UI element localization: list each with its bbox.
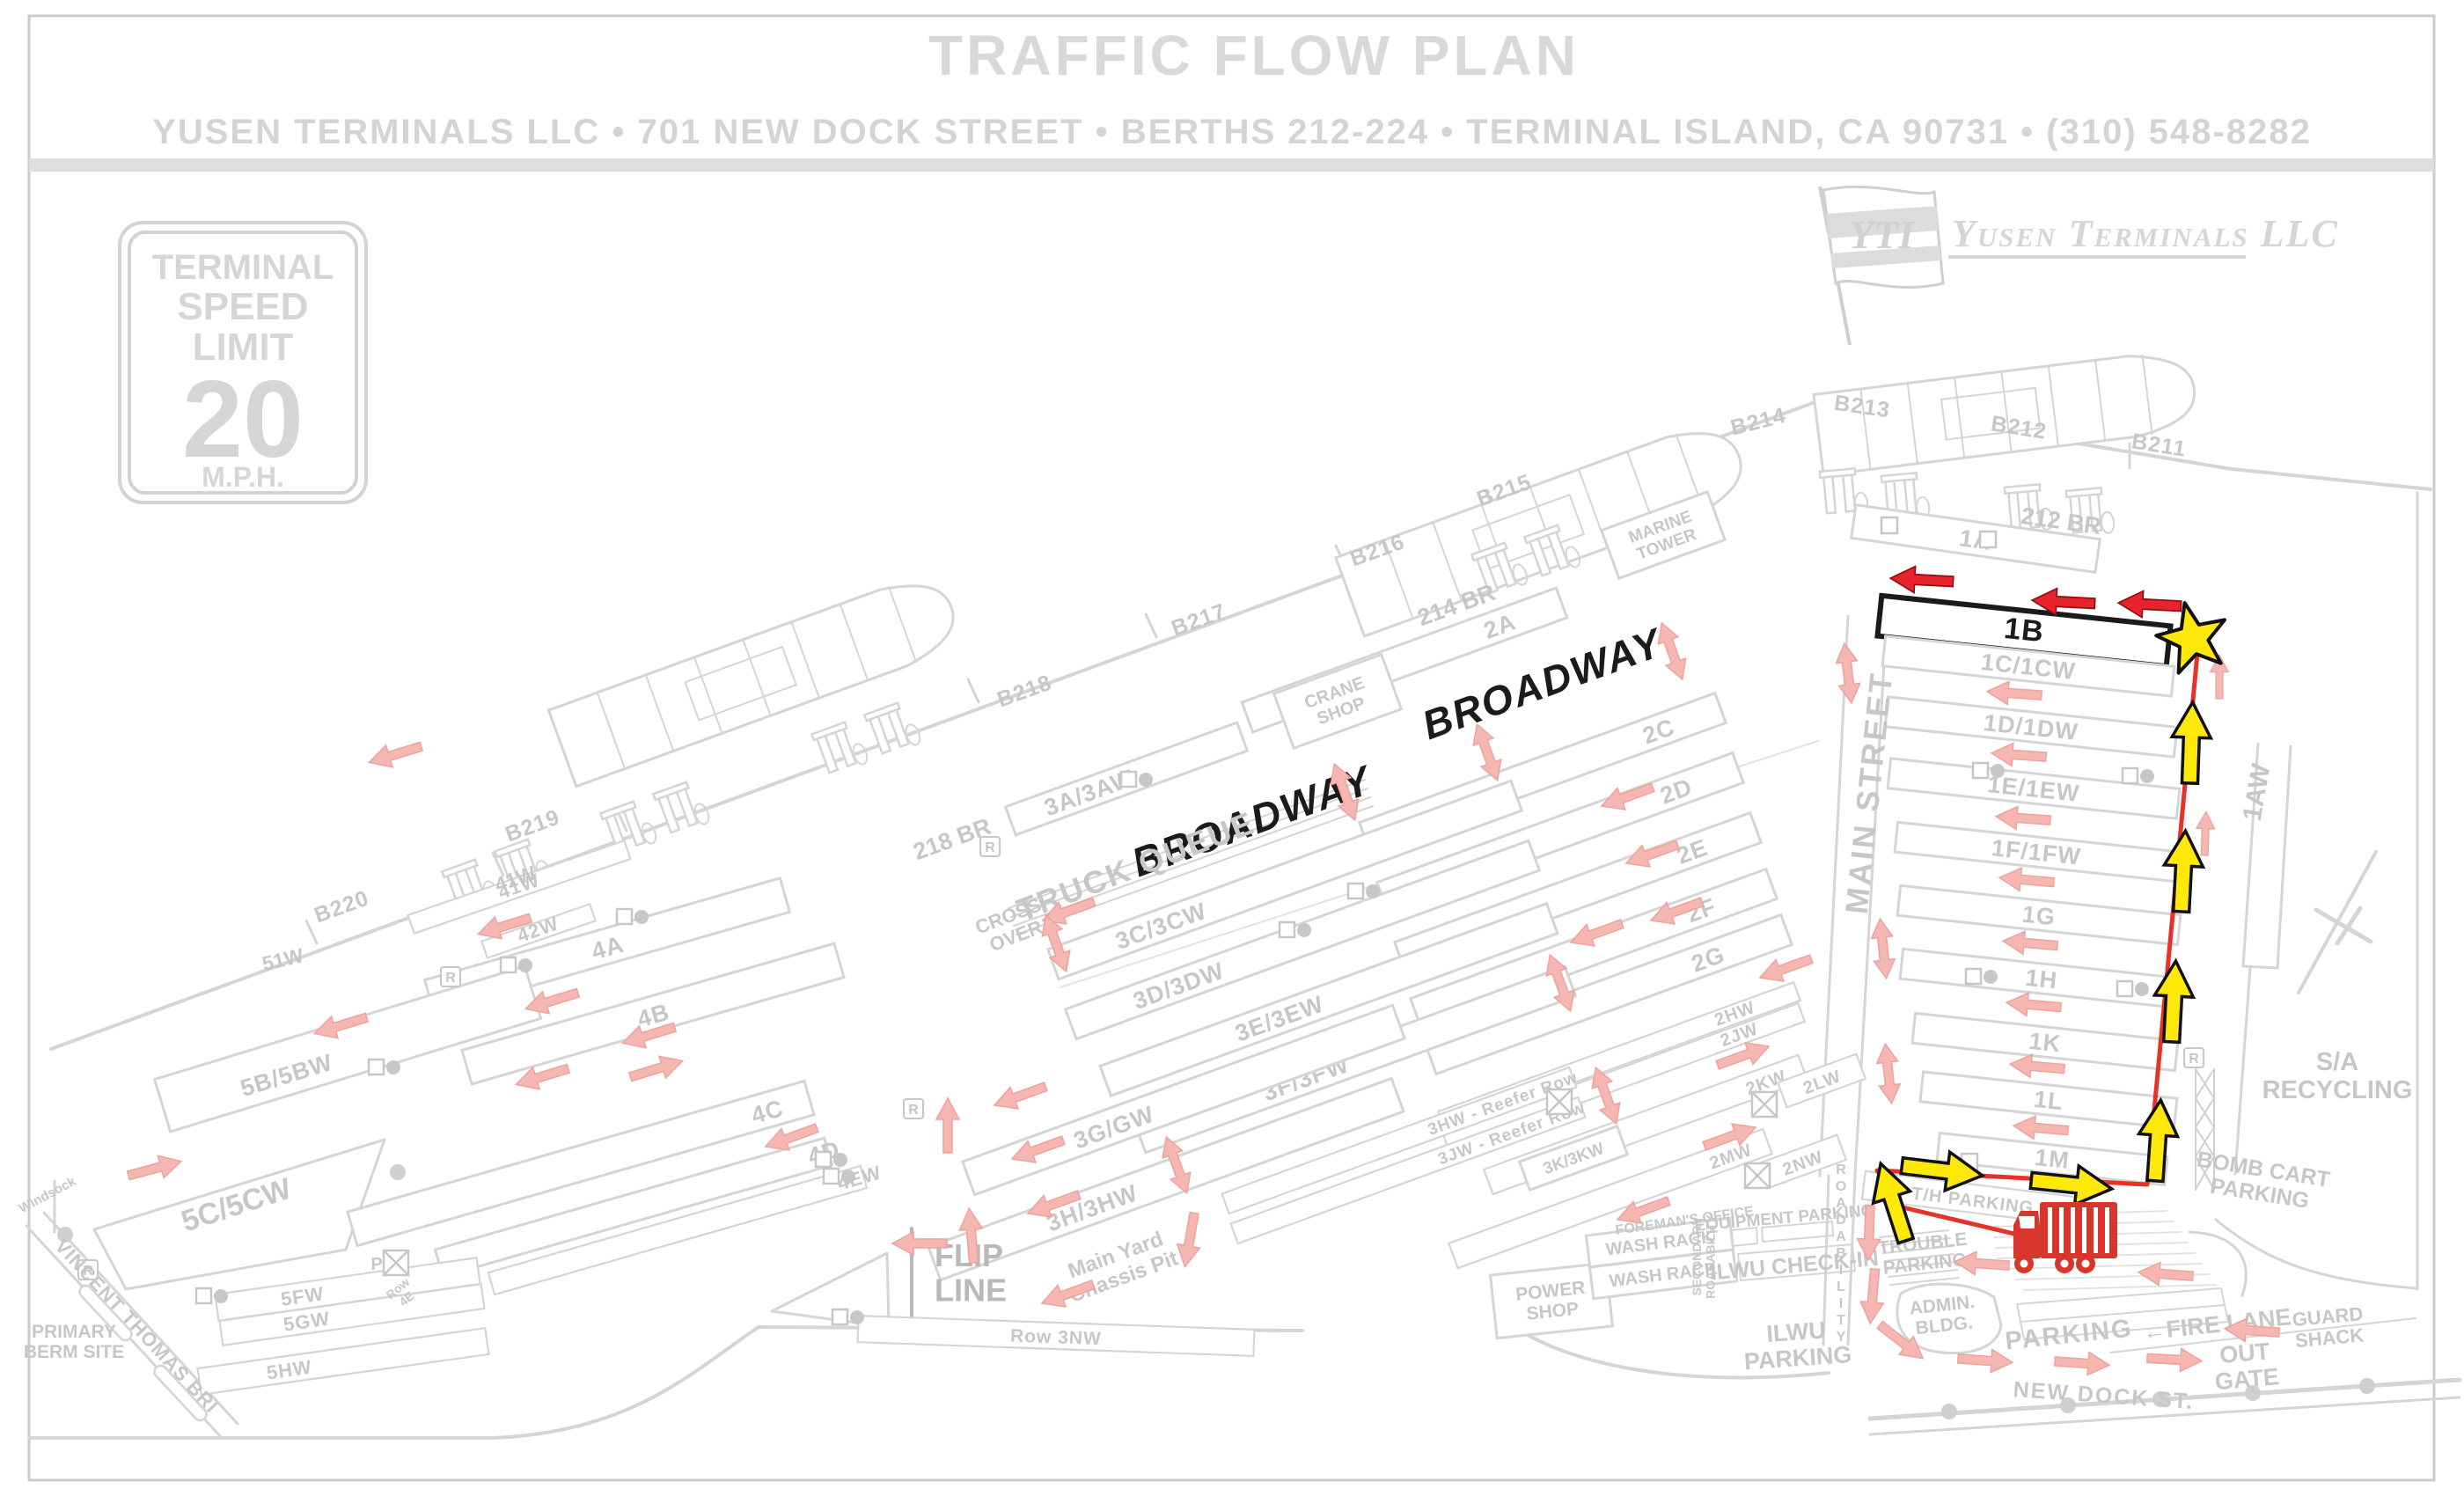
berth-label-text: B218 bbox=[994, 670, 1055, 712]
two-way-flow-arrow-icon bbox=[1875, 1043, 1903, 1104]
map-label-text: TROUBLEPARKING bbox=[1877, 1229, 1970, 1279]
square-icon bbox=[1973, 763, 1988, 778]
page-subtitle: YUSEN TERMINALS LLC • 701 NEW DOCK STREE… bbox=[152, 113, 2312, 151]
roadability-letter: I bbox=[1839, 1263, 1843, 1278]
yard-row-label: 1M bbox=[2034, 1144, 2071, 1174]
yard-row: 2NW bbox=[1758, 1135, 1846, 1189]
sign-unit: M.P.H. bbox=[202, 461, 284, 493]
map-label: PRIMARYBERM SITE bbox=[24, 1322, 124, 1362]
map-label-text: GUARDSHACK bbox=[2292, 1302, 2366, 1352]
flow-arrow-icon bbox=[990, 1076, 1049, 1117]
page-title: TRAFFIC FLOW PLAN bbox=[928, 24, 1580, 87]
crane-leg bbox=[1843, 474, 1855, 512]
truck-container-slat bbox=[2105, 1207, 2109, 1253]
rbox-letter: R bbox=[2189, 1052, 2199, 1067]
map-label-text: CROSSOVER bbox=[972, 893, 1052, 958]
map-label: S/ARECYCLING bbox=[2262, 1048, 2413, 1104]
map-label: ILWU CHECK-IN bbox=[1710, 1246, 1880, 1286]
dot-icon bbox=[1366, 884, 1380, 898]
berth-label: B211 bbox=[2130, 429, 2188, 461]
truck-container-slat bbox=[2071, 1207, 2075, 1253]
flow-arrow-icon bbox=[1995, 805, 2051, 832]
truck-wheel-hub bbox=[2061, 1260, 2069, 1268]
flow-arrow-icon bbox=[627, 1050, 686, 1088]
map-label-text: ADMIN.BLDG. bbox=[1909, 1292, 1978, 1339]
dot-icon bbox=[1984, 970, 1998, 984]
square-icon bbox=[1881, 517, 1897, 533]
square-icon bbox=[1980, 532, 1996, 547]
map-label-text: 1AW bbox=[2238, 761, 2277, 823]
berth-label: B214 bbox=[1728, 403, 1789, 441]
reefer-plug-icon bbox=[1348, 884, 1380, 898]
map-label-text: PARKING bbox=[2004, 1315, 2134, 1356]
map-label: ADMIN.BLDG. bbox=[1909, 1292, 1978, 1339]
sign-line-speed: SPEED bbox=[177, 285, 308, 328]
map-label: OUTGATE bbox=[2211, 1338, 2280, 1396]
map-label-text: S/ARECYCLING bbox=[2262, 1048, 2413, 1104]
sign-line-terminal: TERMINAL bbox=[152, 248, 334, 287]
dot-icon bbox=[1297, 923, 1311, 937]
yard-row-label: Row 3NW bbox=[1010, 1326, 1103, 1350]
square-icon bbox=[617, 909, 632, 924]
roadability-letter: R bbox=[1836, 1162, 1846, 1177]
square-icon bbox=[1280, 922, 1294, 937]
quay-crane-icon bbox=[653, 779, 711, 837]
truck-container-slat bbox=[2094, 1207, 2098, 1253]
yard-row-label: 1G bbox=[2020, 901, 2057, 931]
truck-icon bbox=[2013, 1202, 2117, 1273]
dot-icon bbox=[2140, 769, 2154, 783]
p-marker-icon: P bbox=[370, 1255, 382, 1274]
yard-row-label: 1L bbox=[2033, 1086, 2064, 1115]
road-node-dot bbox=[1941, 1404, 1957, 1419]
map-label-text: 218 BR bbox=[910, 813, 994, 866]
header: TRAFFIC FLOW PLAN YUSEN TERMINALS LLC • … bbox=[29, 24, 2434, 172]
flow-arrow-icon bbox=[2002, 929, 2058, 957]
map-label: 1AW bbox=[2238, 761, 2277, 823]
yard-row: 1K bbox=[1912, 1013, 2178, 1070]
berth-label-text: B220 bbox=[312, 885, 372, 928]
flow-arrow-icon bbox=[1986, 680, 2042, 707]
reefer-plug-icon bbox=[1280, 922, 1311, 937]
map-label: PARKING bbox=[2004, 1315, 2134, 1356]
flow-arrow-icon bbox=[1998, 866, 2055, 893]
map-label-text: BOMB CARTPARKING bbox=[2191, 1147, 2332, 1216]
dot-icon bbox=[634, 910, 649, 924]
square-icon bbox=[1966, 969, 1981, 984]
roadability-letter: T bbox=[1837, 1313, 1845, 1328]
roadability-letter: O bbox=[1836, 1179, 1846, 1194]
reefer-plug-icon bbox=[369, 1060, 400, 1074]
yard-row-label: 1B bbox=[2002, 612, 2045, 649]
yard-row: Row 3NW bbox=[858, 1316, 1255, 1356]
company-name: Yusen Terminals LLC bbox=[1952, 212, 2339, 255]
square-icon bbox=[824, 1169, 839, 1184]
reefer-plug-icon bbox=[2117, 981, 2149, 996]
map-label-text: 5C/5CW bbox=[178, 1171, 297, 1238]
flow-arrow-icon bbox=[2013, 1114, 2069, 1141]
road-node-dot bbox=[390, 1164, 406, 1180]
reefer-plug-icon bbox=[832, 1309, 864, 1324]
two-way-flow-arrow-icon bbox=[1834, 642, 1862, 704]
square-icon bbox=[832, 1309, 847, 1324]
yard-row: 1L bbox=[1920, 1072, 2177, 1128]
rbox-letter: R bbox=[985, 840, 995, 855]
red-flow-arrow-icon bbox=[2117, 590, 2182, 620]
roadability-letter: I bbox=[1839, 1296, 1843, 1311]
truck-container-slat bbox=[2059, 1207, 2064, 1253]
berth-label: B217 bbox=[1169, 598, 1229, 641]
company-logo: YTI Yusen Terminals LLC bbox=[1820, 187, 2339, 345]
reefer-plug-icon bbox=[617, 909, 649, 924]
reefer-plug-icon bbox=[816, 1152, 847, 1167]
square-icon bbox=[816, 1152, 831, 1167]
roadability-letter: B bbox=[1836, 1246, 1846, 1261]
terminal-map-canvas: TRAFFIC FLOW PLAN YUSEN TERMINALS LLC • … bbox=[0, 0, 2464, 1496]
dot-icon bbox=[1139, 773, 1153, 787]
berth-label-text: B214 bbox=[1728, 403, 1789, 441]
map-label: BOMB CARTPARKING bbox=[2191, 1147, 2332, 1216]
berth-label-text: B219 bbox=[502, 804, 563, 847]
map-label: GUARDSHACK bbox=[2292, 1302, 2366, 1352]
map-label: MAIN STREET bbox=[1838, 670, 1900, 916]
berth-label: B218 bbox=[994, 670, 1055, 712]
square-icon bbox=[1348, 884, 1363, 898]
berth-label: B219 bbox=[502, 804, 563, 847]
truck-container-slat bbox=[2048, 1207, 2052, 1253]
map-label-text: 51W bbox=[260, 943, 305, 975]
two-way-flow-arrow-icon bbox=[1870, 918, 1897, 979]
dot-icon bbox=[841, 1170, 855, 1184]
yard-row: 1D/1DW bbox=[1885, 697, 2177, 757]
ship-outline bbox=[548, 568, 964, 786]
map-label: SECONDARYROADABILITY bbox=[1690, 1214, 1717, 1299]
flow-arrow-icon bbox=[2146, 1346, 2202, 1372]
map-label: 5C/5CW bbox=[178, 1171, 297, 1238]
yard-row-label: 3D/3DW bbox=[1130, 957, 1228, 1015]
r-marker-icon: R bbox=[441, 967, 460, 986]
yard-row: 1F/1FW bbox=[1895, 822, 2178, 881]
road-line bbox=[2243, 966, 2277, 968]
reefer-plug-icon bbox=[2123, 768, 2154, 783]
berth-label: B220 bbox=[312, 885, 372, 928]
crossed-box-icon bbox=[384, 1250, 408, 1275]
reefer-plug-icon bbox=[1121, 772, 1153, 787]
reefer-plug-icon bbox=[1973, 763, 2005, 778]
square-icon bbox=[501, 957, 516, 972]
flag-initials: YTI bbox=[1849, 212, 1916, 257]
rbox-letter: R bbox=[445, 971, 456, 986]
truck-window bbox=[2019, 1216, 2035, 1228]
road-line bbox=[2277, 746, 2291, 968]
r-marker-icon: R bbox=[904, 1099, 923, 1118]
flow-arrow-icon bbox=[1174, 1211, 1206, 1269]
truck-wheel-hub bbox=[2020, 1260, 2028, 1268]
dot-icon bbox=[518, 958, 532, 972]
square-icon bbox=[1121, 772, 1136, 787]
red-flow-arrow-icon bbox=[1889, 565, 1954, 595]
traffic-flow-plan-page: TRAFFIC FLOW PLAN YUSEN TERMINALS LLC • … bbox=[0, 0, 2464, 1496]
crossed-box-icon bbox=[1547, 1089, 1572, 1114]
crossed-box-icon bbox=[1745, 1163, 1770, 1188]
map-label-text: SECONDARYROADABILITY bbox=[1690, 1214, 1717, 1299]
map-label: CROSSOVER bbox=[972, 893, 1052, 958]
map-label: 218 BR bbox=[910, 813, 994, 866]
speed-limit-sign: TERMINAL SPEED LIMIT 20 M.P.H. bbox=[120, 223, 366, 502]
yard-row-label: 3C/3CW bbox=[1112, 898, 1211, 955]
crane-leg bbox=[1904, 479, 1917, 517]
flow-arrow-icon bbox=[366, 736, 425, 774]
berth-label-text: B217 bbox=[1169, 598, 1229, 641]
flow-arrow-icon bbox=[2196, 811, 2216, 855]
rbox-letter: R bbox=[908, 1103, 919, 1118]
square-icon bbox=[369, 1060, 384, 1074]
roadability-letter: L bbox=[1837, 1280, 1845, 1294]
map-label: Windsock bbox=[17, 1174, 79, 1217]
dot-icon bbox=[2135, 982, 2149, 996]
dot-icon bbox=[214, 1289, 228, 1303]
yard-row-label: 1H bbox=[2024, 964, 2058, 994]
crossed-box-icon bbox=[1752, 1092, 1777, 1117]
berth-label-text: B211 bbox=[2130, 429, 2188, 461]
yard-row: 1G bbox=[1897, 885, 2181, 944]
map-label-text: ILWU CHECK-IN bbox=[1710, 1246, 1880, 1286]
truck-container-slat bbox=[2082, 1207, 2086, 1253]
reefer-plug-icon bbox=[501, 957, 532, 972]
yard-row: 1H bbox=[1900, 949, 2183, 1008]
reefer-plug-icon bbox=[1966, 969, 1998, 984]
header-divider bbox=[29, 158, 2434, 172]
dot-icon bbox=[833, 1153, 847, 1167]
map-label-text: OUTGATE bbox=[2211, 1338, 2280, 1396]
square-icon bbox=[196, 1288, 211, 1303]
r-marker-icon: R bbox=[2184, 1048, 2204, 1067]
road-line bbox=[2235, 968, 2250, 1174]
reefer-plug-icon bbox=[196, 1288, 228, 1303]
reefer-plug-icon bbox=[824, 1169, 855, 1184]
roadability-letter: Y bbox=[1837, 1330, 1846, 1345]
road-node-dot bbox=[2359, 1378, 2375, 1394]
flow-arrow-icon bbox=[2054, 1350, 2110, 1376]
crane-leg bbox=[1823, 476, 1836, 514]
flow-arrow-icon bbox=[126, 1150, 185, 1186]
roadability-letter: A bbox=[1836, 1229, 1846, 1244]
dot-icon bbox=[386, 1060, 400, 1074]
roadability-letter: D bbox=[1836, 1213, 1846, 1228]
square-icon bbox=[2123, 768, 2138, 783]
dot-icon bbox=[850, 1310, 864, 1324]
truck-wheel-hub bbox=[2082, 1260, 2090, 1268]
map-label-text: MAIN STREET bbox=[1838, 670, 1900, 916]
flow-arrow-icon bbox=[1859, 1268, 1886, 1324]
crane-wheel bbox=[2101, 511, 2115, 533]
route-direction-arrow-icon bbox=[2170, 701, 2211, 783]
dot-icon bbox=[1991, 764, 2005, 778]
square-icon bbox=[2117, 981, 2132, 996]
crane-leg bbox=[2008, 492, 2020, 530]
map-label: TROUBLEPARKING bbox=[1877, 1229, 1970, 1279]
flow-arrow-icon bbox=[936, 1098, 959, 1153]
map-label: 51W bbox=[260, 943, 305, 975]
map-label-text: PRIMARYBERM SITE bbox=[24, 1322, 124, 1362]
roadability-letter: A bbox=[1836, 1196, 1846, 1211]
yard-row-label: 1K bbox=[2028, 1028, 2062, 1058]
map-label-text: Windsock bbox=[17, 1174, 79, 1217]
